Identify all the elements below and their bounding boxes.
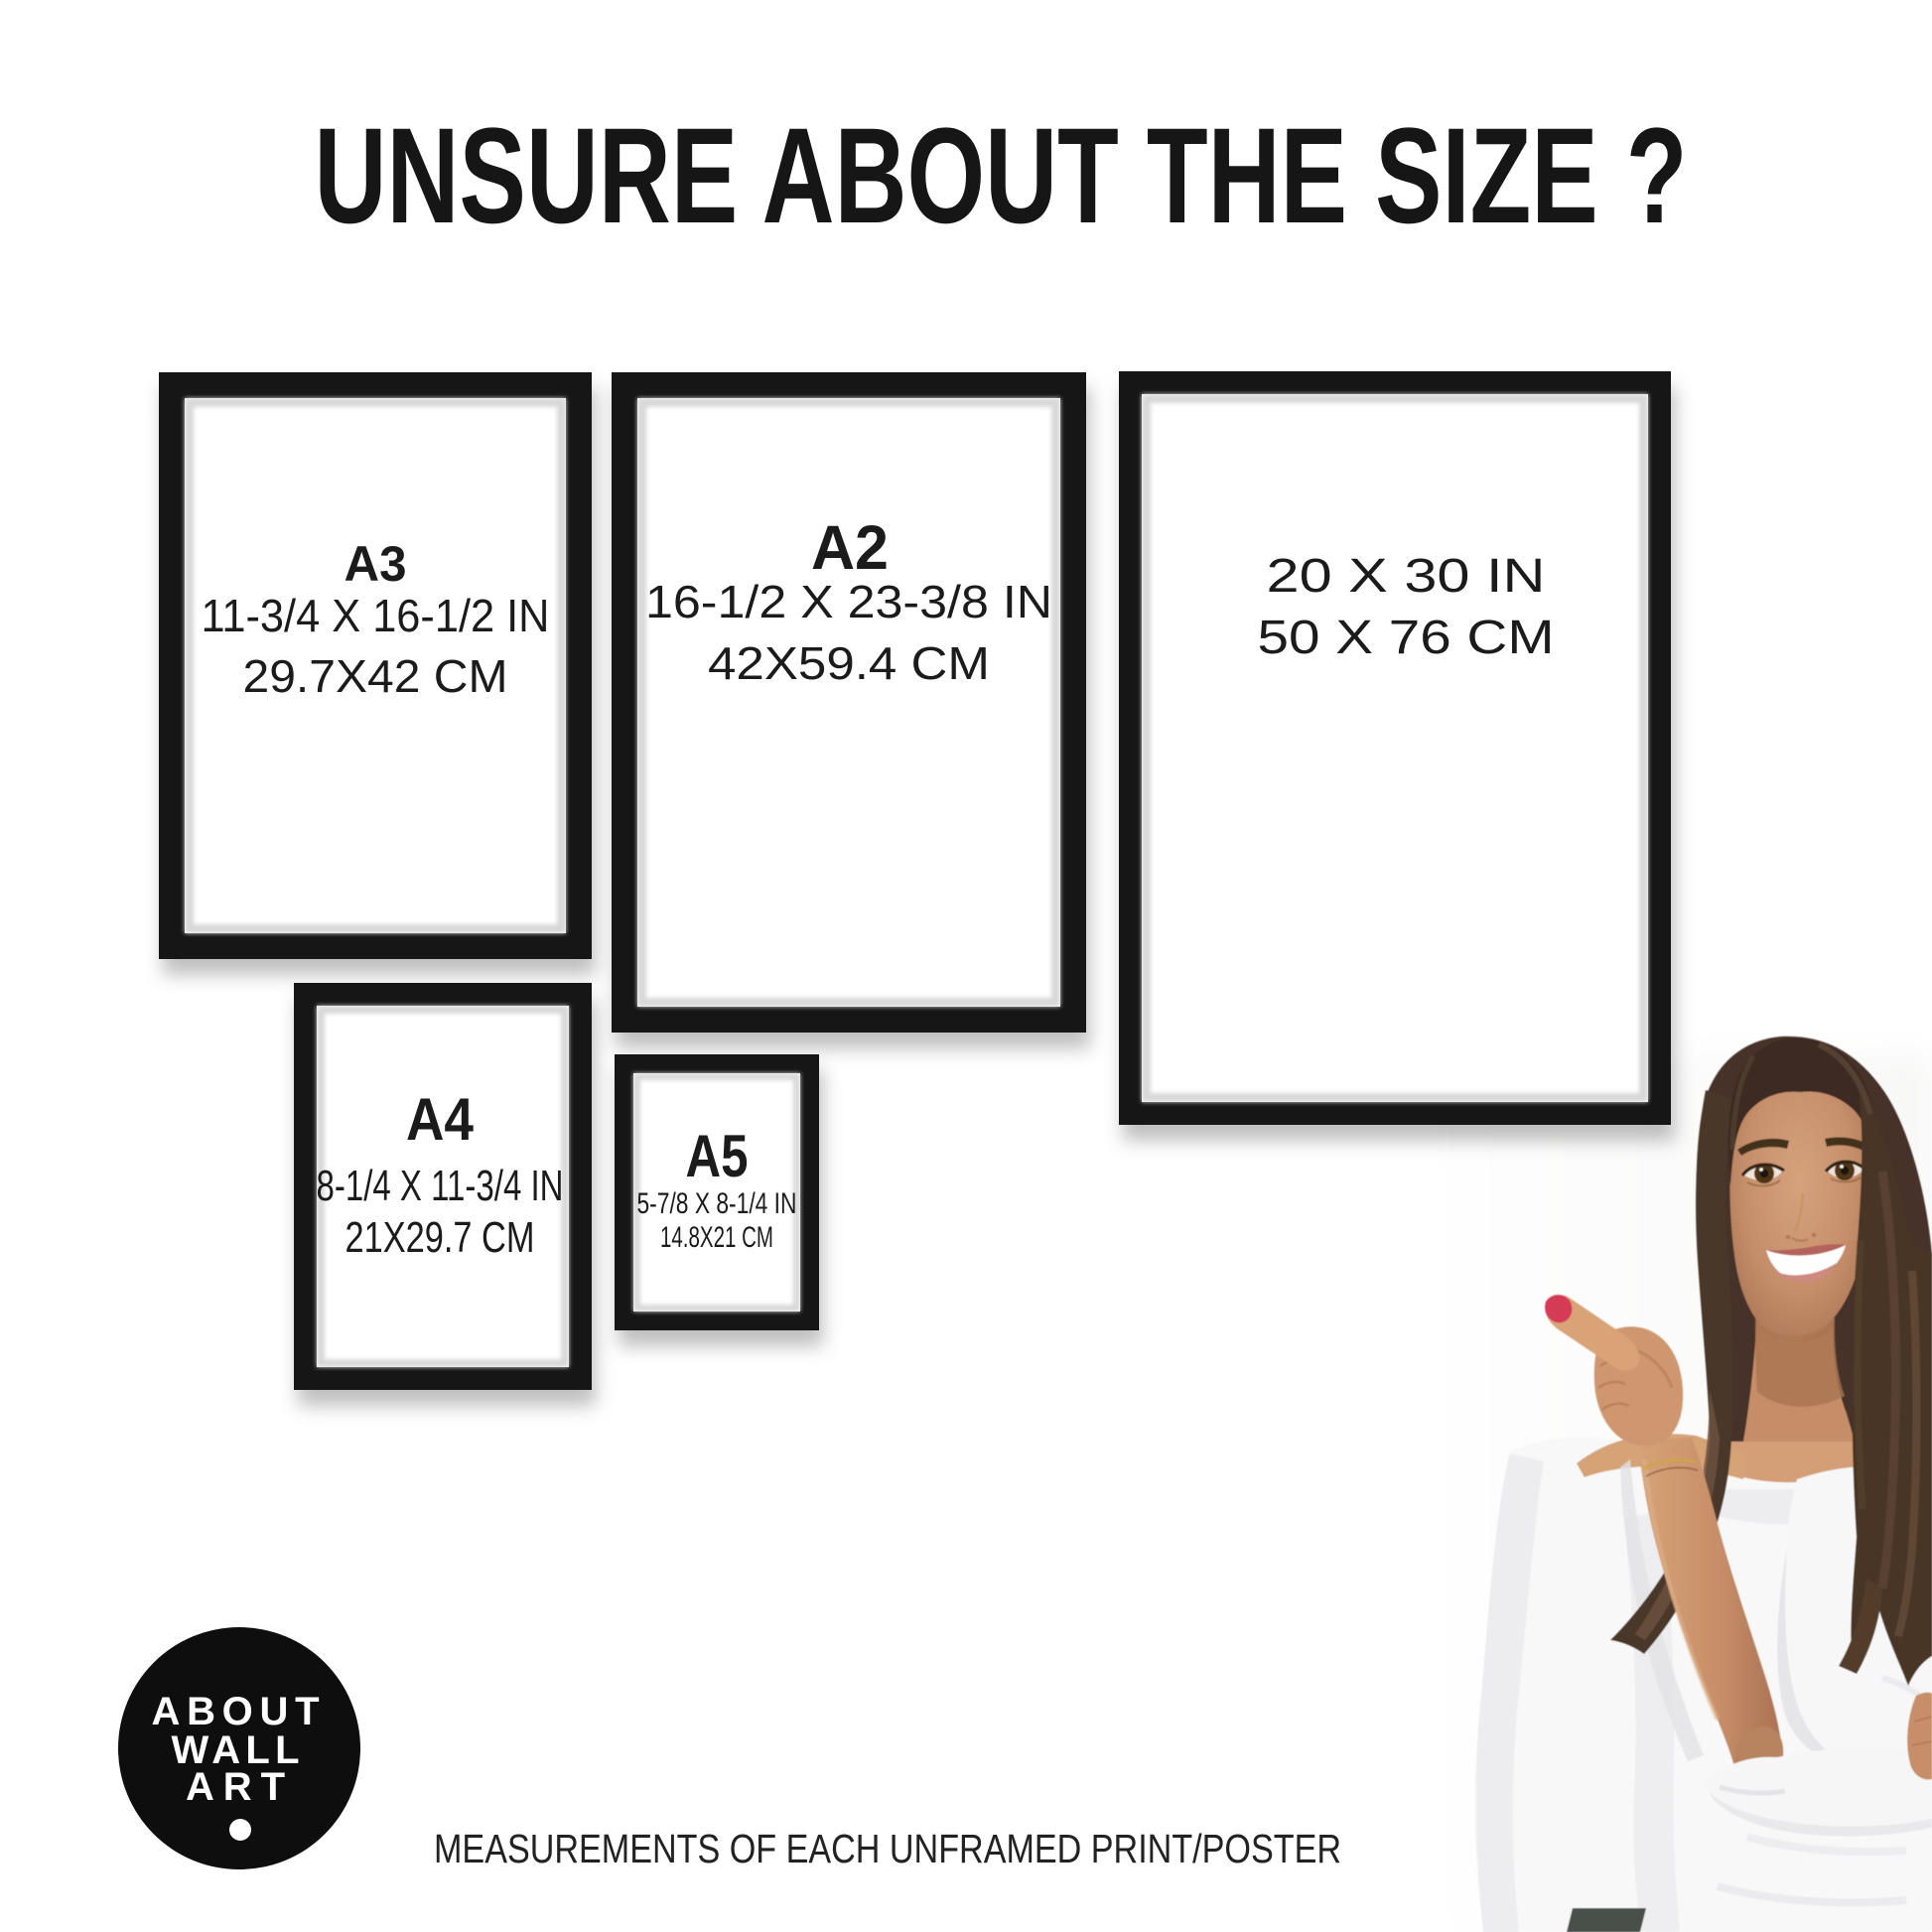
svg-text:ABOUT: ABOUT [152,1690,328,1733]
svg-text:A5: A5 [686,1123,749,1189]
svg-text:29.7X42 CM: 29.7X42 CM [243,650,508,702]
svg-text:14.8X21 CM: 14.8X21 CM [660,1221,773,1254]
svg-text:42X59.4 CM: 42X59.4 CM [708,637,990,689]
svg-text:A2: A2 [811,513,889,583]
svg-text:A4: A4 [406,1086,475,1153]
svg-text:UNSURE ABOUT THE SIZE ?: UNSURE ABOUT THE SIZE ? [315,100,1688,252]
svg-text:11-3/4 X 16-1/2 IN: 11-3/4 X 16-1/2 IN [202,590,550,641]
svg-text:21X29.7 CM: 21X29.7 CM [345,1213,535,1262]
svg-text:ART: ART [186,1765,293,1809]
svg-text:16-1/2 X 23-3/8 IN: 16-1/2 X 23-3/8 IN [645,576,1052,627]
svg-text:50 X 76 CM: 50 X 76 CM [1258,612,1555,664]
svg-text:5-7/8 X 8-1/4 IN: 5-7/8 X 8-1/4 IN [637,1187,797,1220]
svg-text:8-1/4 X 11-3/4 IN: 8-1/4 X 11-3/4 IN [317,1162,564,1210]
svg-text:20 X 30 IN: 20 X 30 IN [1267,550,1546,603]
svg-text:A3: A3 [345,536,407,592]
svg-text:MEASUREMENTS OF EACH UNFRAMED: MEASUREMENTS OF EACH UNFRAMED PRINT/POST… [434,1826,1341,1871]
